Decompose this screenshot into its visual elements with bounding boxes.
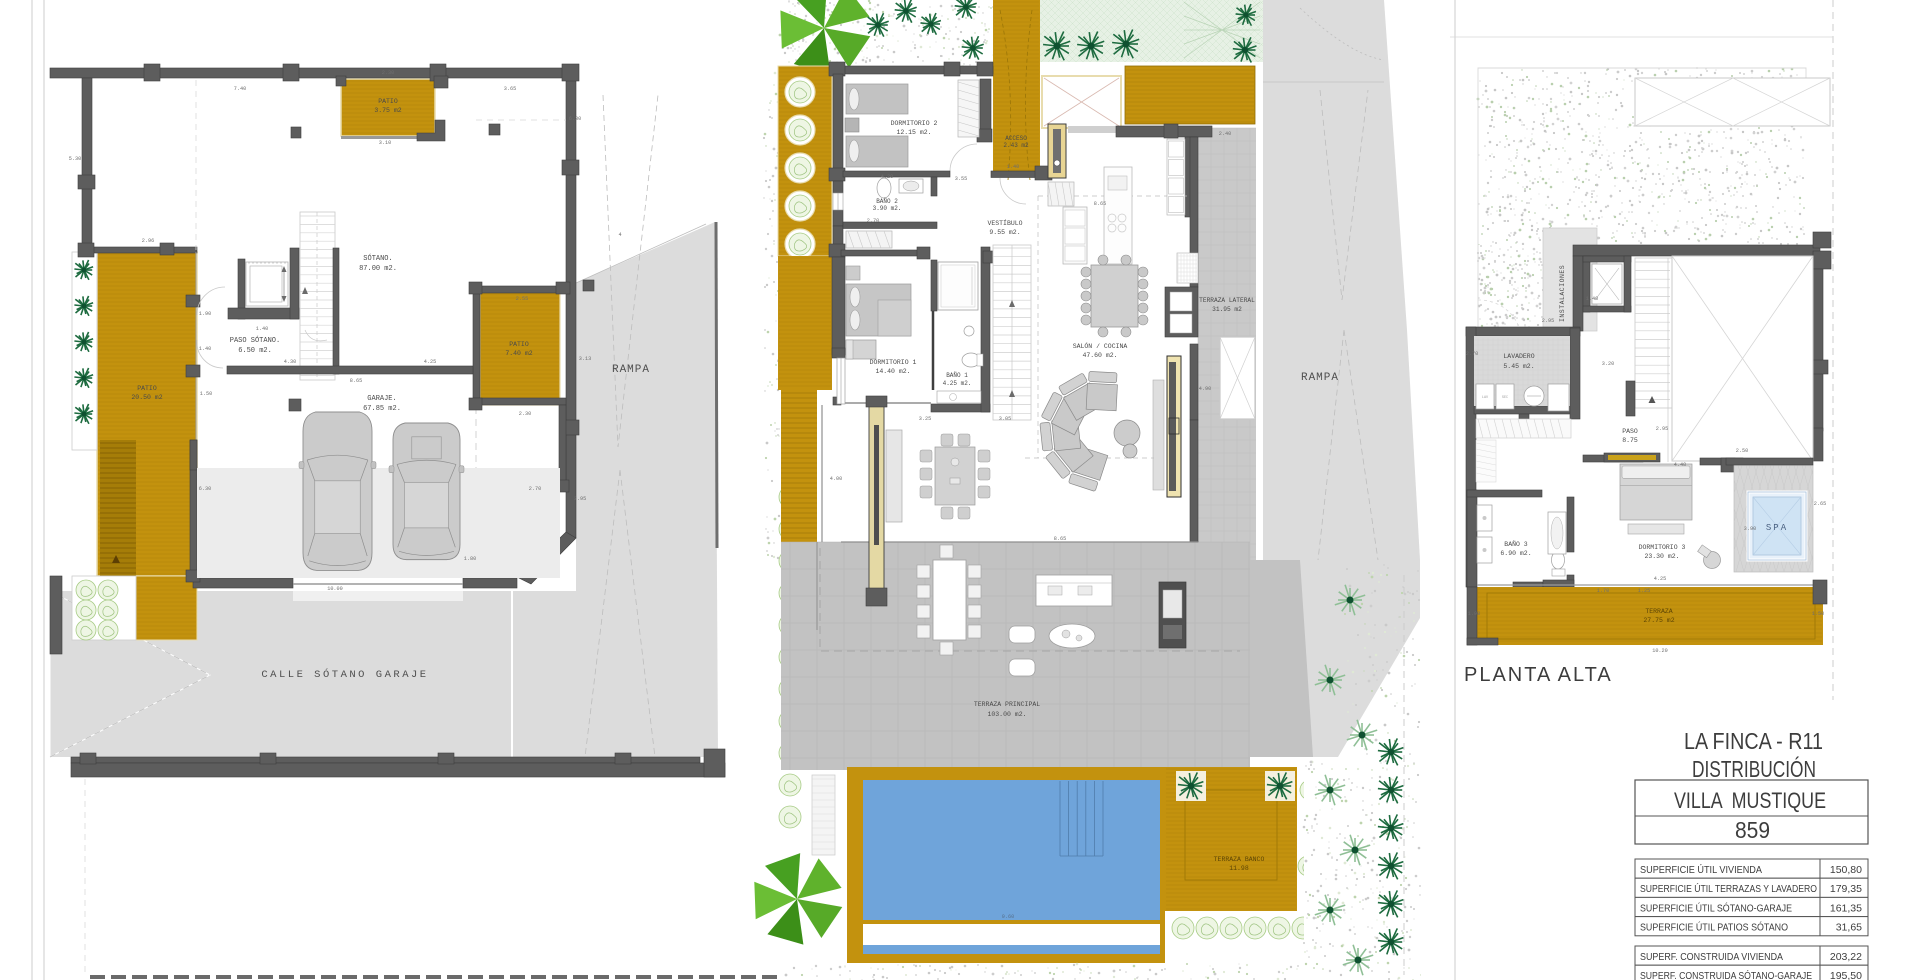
svg-text:SPA: SPA	[1766, 523, 1788, 533]
svg-text:195,50: 195,50	[1830, 970, 1862, 980]
svg-text:3.65: 3.65	[504, 86, 516, 92]
svg-text:10.20: 10.20	[1652, 648, 1668, 654]
svg-text:SALÓN / COCINA: SALÓN / COCINA	[1073, 341, 1128, 350]
svg-text:2.95: 2.95	[1542, 318, 1554, 324]
svg-text:SEC: SEC	[1502, 396, 1508, 400]
svg-text:4.90: 4.90	[1199, 386, 1211, 392]
svg-text:47.60 m2.: 47.60 m2.	[1082, 352, 1117, 359]
svg-text:179,35: 179,35	[1830, 883, 1862, 895]
svg-text:103.00 m2.: 103.00 m2.	[987, 711, 1026, 718]
svg-text:20.50 m2: 20.50 m2	[131, 394, 162, 401]
svg-text:31.95 m2: 31.95 m2	[1212, 306, 1242, 313]
svg-text:859: 859	[1735, 817, 1770, 843]
svg-text:SUPERF. CONSTRUIDA SÓTANO-GARA: SUPERF. CONSTRUIDA SÓTANO-GARAJE	[1640, 969, 1812, 980]
svg-text:8.65: 8.65	[1054, 536, 1066, 542]
svg-text:ACCESO: ACCESO	[1005, 135, 1027, 142]
svg-text:PLANTA ALTA: PLANTA ALTA	[1464, 664, 1613, 686]
svg-text:67.85 m2.: 67.85 m2.	[363, 405, 401, 413]
svg-text:3.25: 3.25	[919, 416, 931, 422]
svg-text:4.25 m2.: 4.25 m2.	[943, 380, 972, 387]
svg-text:7.40: 7.40	[234, 86, 246, 92]
svg-text:TERRAZA: TERRAZA	[1645, 608, 1672, 615]
svg-text:2.30: 2.30	[519, 411, 531, 417]
svg-text:PATIO: PATIO	[378, 98, 398, 105]
svg-text:1.40: 1.40	[199, 346, 211, 352]
svg-text:LAVADERO: LAVADERO	[1503, 353, 1534, 360]
svg-text:5.30: 5.30	[69, 156, 81, 162]
svg-text:CALLE SÓTANO GARAJE: CALLE SÓTANO GARAJE	[261, 667, 428, 681]
svg-text:4.20: 4.20	[881, 174, 893, 180]
svg-text:10.00: 10.00	[327, 586, 343, 592]
svg-text:6.50 m2.: 6.50 m2.	[238, 347, 272, 355]
svg-text:DORMITORIO 1: DORMITORIO 1	[870, 359, 917, 366]
svg-text:3.05: 3.05	[999, 416, 1011, 422]
svg-text:SUPERFICIE ÚTIL SÓTANO-GARAJE: SUPERFICIE ÚTIL SÓTANO-GARAJE	[1640, 901, 1792, 914]
svg-text:3.90: 3.90	[1744, 526, 1756, 532]
svg-text:1.70: 1.70	[1597, 588, 1609, 594]
svg-text:203,22: 203,22	[1830, 951, 1862, 963]
svg-text:BAÑO 3: BAÑO 3	[1504, 540, 1528, 548]
svg-text:4.25: 4.25	[424, 359, 436, 365]
svg-text:2.70: 2.70	[529, 486, 541, 492]
svg-text:9.55 m2.: 9.55 m2.	[989, 229, 1020, 236]
svg-text:TERRAZA PRINCIPAL: TERRAZA PRINCIPAL	[974, 701, 1040, 708]
svg-text:3.55: 3.55	[955, 176, 967, 182]
svg-text:SÓTANO.: SÓTANO.	[363, 253, 392, 263]
svg-text:1.40: 1.40	[1586, 296, 1598, 302]
svg-text:8.65: 8.65	[1094, 201, 1106, 207]
svg-text:PASO SÓTANO.: PASO SÓTANO.	[230, 335, 280, 345]
svg-text:3.10: 3.10	[379, 140, 391, 146]
svg-text:6.90 m2.: 6.90 m2.	[1500, 550, 1531, 557]
svg-text:2.96: 2.96	[142, 238, 154, 244]
svg-text:RAMPA: RAMPA	[612, 364, 650, 376]
svg-text:87.00 m2.: 87.00 m2.	[359, 265, 397, 273]
svg-text:161,35: 161,35	[1830, 902, 1862, 914]
svg-text:1.40: 1.40	[256, 326, 268, 332]
svg-text:4.00: 4.00	[830, 476, 842, 482]
svg-text:SUPERFICIE ÚTIL TERRAZAS Y LAV: SUPERFICIE ÚTIL TERRAZAS Y LAVADERO	[1640, 882, 1817, 895]
svg-text:4.30: 4.30	[284, 359, 296, 365]
svg-text:INSTALACIONES: INSTALACIONES	[1559, 265, 1566, 322]
svg-text:3.75 m2: 3.75 m2	[374, 107, 401, 114]
svg-text:1.50: 1.50	[200, 391, 212, 397]
svg-text:2.70: 2.70	[867, 218, 879, 224]
svg-text:1.25: 1.25	[1638, 588, 1650, 594]
svg-text:3.90 m2.: 3.90 m2.	[873, 205, 902, 212]
svg-text:4.25: 4.25	[1654, 576, 1666, 582]
svg-text:2.43 m2: 2.43 m2	[1003, 142, 1029, 149]
svg-text:1.50: 1.50	[1812, 611, 1824, 617]
svg-text:1.80: 1.80	[464, 556, 476, 562]
svg-text:12.15 m2.: 12.15 m2.	[896, 129, 931, 136]
svg-text:SUPERF. CONSTRUIDA VIVIENDA: SUPERF. CONSTRUIDA VIVIENDA	[1640, 951, 1783, 963]
svg-text:1.40: 1.40	[1007, 164, 1019, 170]
svg-text:5.45 m2.: 5.45 m2.	[1503, 363, 1534, 370]
svg-text:PATIO: PATIO	[509, 341, 529, 348]
svg-text:SUPERFICIE ÚTIL PATIOS SÓTANO: SUPERFICIE ÚTIL PATIOS SÓTANO	[1640, 921, 1788, 934]
svg-text:2.30: 2.30	[382, 70, 394, 76]
svg-text:6.30: 6.30	[199, 486, 211, 492]
svg-text:DORMITORIO 3: DORMITORIO 3	[1639, 544, 1686, 551]
svg-text:BAÑO 1: BAÑO 1	[946, 372, 968, 379]
svg-text:150,80: 150,80	[1830, 864, 1862, 876]
svg-text:3.20: 3.20	[1602, 361, 1614, 367]
svg-text:VESTÍBULO: VESTÍBULO	[987, 219, 1022, 227]
svg-text:LAV: LAV	[1482, 396, 1489, 400]
svg-text:9.60: 9.60	[1002, 914, 1014, 920]
svg-text:TERRAZA BANCO: TERRAZA BANCO	[1214, 856, 1265, 863]
svg-text:4.40: 4.40	[1674, 462, 1686, 468]
svg-text:2.50: 2.50	[1736, 448, 1748, 454]
svg-text:RAMPA: RAMPA	[1301, 372, 1339, 384]
svg-text:31,65: 31,65	[1836, 922, 1862, 934]
svg-text:2.65: 2.65	[1814, 501, 1826, 507]
svg-text:LA FINCA - R11: LA FINCA - R11	[1684, 728, 1823, 754]
svg-text:8.65: 8.65	[350, 378, 362, 384]
svg-text:8.75: 8.75	[1622, 437, 1638, 444]
svg-text:2.40: 2.40	[1219, 131, 1231, 137]
svg-text:VILLA MUSTIQUE: VILLA MUSTIQUE	[1674, 788, 1826, 813]
svg-text:GARAJE.: GARAJE.	[367, 395, 396, 403]
svg-text:2.70: 2.70	[1466, 351, 1478, 357]
svg-text:PASO: PASO	[1622, 428, 1638, 435]
svg-text:3.95: 3.95	[574, 496, 586, 502]
svg-text:1.90: 1.90	[1468, 611, 1480, 617]
svg-text:SUPERFICIE ÚTIL VIVIENDA: SUPERFICIE ÚTIL VIVIENDA	[1640, 863, 1762, 876]
svg-text:14.40 m2.: 14.40 m2.	[875, 368, 910, 375]
svg-text:27.75 m2: 27.75 m2	[1643, 617, 1674, 624]
svg-text:6.30: 6.30	[569, 116, 581, 122]
svg-text:4: 4	[618, 232, 621, 238]
svg-text:3.13: 3.13	[579, 356, 591, 362]
svg-text:7.40 m2: 7.40 m2	[505, 350, 532, 357]
svg-text:BAÑO 2: BAÑO 2	[876, 198, 898, 205]
svg-text:PATIO: PATIO	[137, 385, 157, 392]
svg-text:2.55: 2.55	[516, 296, 528, 302]
svg-text:2.95: 2.95	[1656, 426, 1668, 432]
svg-text:DORMITORIO 2: DORMITORIO 2	[891, 120, 938, 127]
svg-text:1.90: 1.90	[199, 311, 211, 317]
svg-text:11.98: 11.98	[1229, 865, 1249, 872]
svg-text:TERRAZA LATERAL: TERRAZA LATERAL	[1199, 297, 1255, 304]
svg-text:23.30 m2.: 23.30 m2.	[1644, 553, 1679, 560]
svg-text:DISTRIBUCIÓN: DISTRIBUCIÓN	[1692, 756, 1816, 782]
